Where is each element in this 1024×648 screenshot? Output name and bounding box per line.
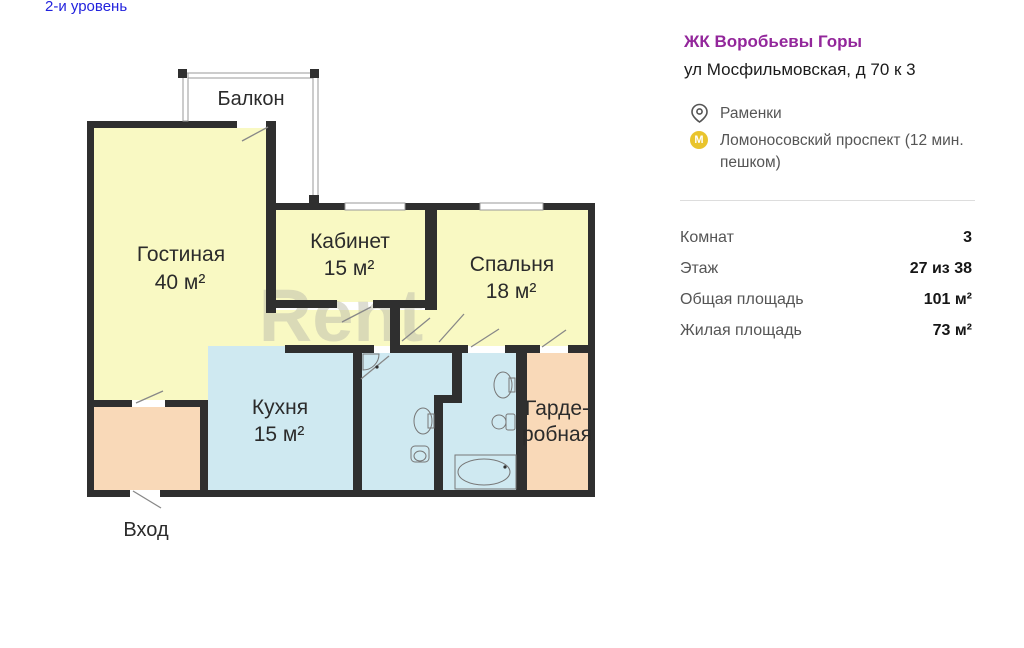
- office-area: 15 м²: [324, 257, 375, 280]
- metro-row: М Ломоносовский проспект (12 мин. пешком…: [690, 130, 972, 174]
- fixture-dot: [375, 365, 378, 368]
- detail-label: Жилая площадь: [680, 322, 802, 340]
- wall: [87, 490, 130, 497]
- detail-row-total-area: Общая площадь 101 м²: [680, 284, 972, 315]
- wardrobe-label-line1: Гарде-: [525, 397, 589, 420]
- balcony-post: [309, 195, 319, 205]
- wardrobe-label-line2: робная: [522, 423, 592, 446]
- divider: [680, 200, 975, 201]
- detail-label: Комнат: [680, 229, 734, 247]
- wall: [437, 345, 468, 353]
- wall: [266, 300, 337, 308]
- entrance-label: Вход: [123, 519, 169, 541]
- details-table: Комнат 3 Этаж 27 из 38 Общая площадь 101…: [680, 222, 972, 346]
- wall: [405, 203, 480, 210]
- bedroom-label: Спальня: [470, 253, 554, 276]
- wall: [588, 203, 595, 497]
- wall: [434, 403, 443, 490]
- wall: [434, 395, 462, 403]
- bedroom-area: 18 м²: [486, 280, 537, 303]
- location-pin-icon: [690, 103, 710, 123]
- living-room-label: Гостиная: [137, 243, 225, 266]
- balcony-label: Балкон: [217, 88, 284, 110]
- detail-value: 101 м²: [924, 291, 972, 309]
- room-wardrobe-area: [527, 353, 588, 490]
- detail-value: 73 м²: [933, 322, 972, 340]
- address: ул Мосфильмовская, д 70 к 3: [684, 60, 916, 80]
- balcony-wall: [183, 73, 318, 78]
- complex-name: ЖК Воробьевы Горы: [684, 32, 862, 52]
- detail-row-rooms: Комнат 3: [680, 222, 972, 253]
- metro-station: Ломоносовский проспект (12 мин. пешком): [720, 130, 972, 174]
- window-office: [345, 203, 405, 210]
- detail-row-living-area: Жилая площадь 73 м²: [680, 315, 972, 346]
- wall: [160, 490, 595, 497]
- wall: [390, 345, 443, 353]
- wall: [266, 203, 345, 210]
- detail-label: Общая площадь: [680, 291, 804, 309]
- floor-plan: Rent: [0, 0, 660, 648]
- wall: [373, 300, 425, 308]
- window-bedroom: [480, 203, 543, 210]
- detail-value: 3: [963, 229, 972, 247]
- balcony-wall: [313, 73, 318, 203]
- detail-value: 27 из 38: [910, 260, 972, 278]
- wall: [266, 121, 276, 313]
- entry-hall-area: [94, 407, 200, 490]
- wall: [285, 345, 374, 353]
- district-name: Раменки: [720, 103, 782, 125]
- kitchen-label: Кухня: [252, 396, 308, 419]
- wall: [425, 203, 437, 310]
- wall: [87, 400, 132, 407]
- wall: [452, 353, 462, 400]
- page: 2-и уровень Rent: [0, 0, 1024, 648]
- balcony-post: [178, 69, 187, 78]
- metro-icon: М: [690, 130, 710, 150]
- wall: [87, 121, 237, 128]
- kitchen-area: 15 м²: [254, 423, 305, 446]
- door-entrance: [133, 491, 161, 508]
- wall: [200, 400, 208, 490]
- district-row: Раменки: [690, 103, 782, 125]
- wall: [543, 203, 595, 210]
- balcony-post: [310, 69, 319, 78]
- living-room-area: 40 м²: [155, 271, 206, 294]
- balcony-wall: [183, 73, 188, 121]
- office-label: Кабинет: [310, 230, 390, 253]
- wall: [87, 121, 94, 490]
- detail-row-floor: Этаж 27 из 38: [680, 253, 972, 284]
- wall: [353, 353, 362, 490]
- detail-label: Этаж: [680, 260, 718, 278]
- room-bedroom-area: [437, 210, 588, 346]
- bathtub-tap: [503, 465, 506, 468]
